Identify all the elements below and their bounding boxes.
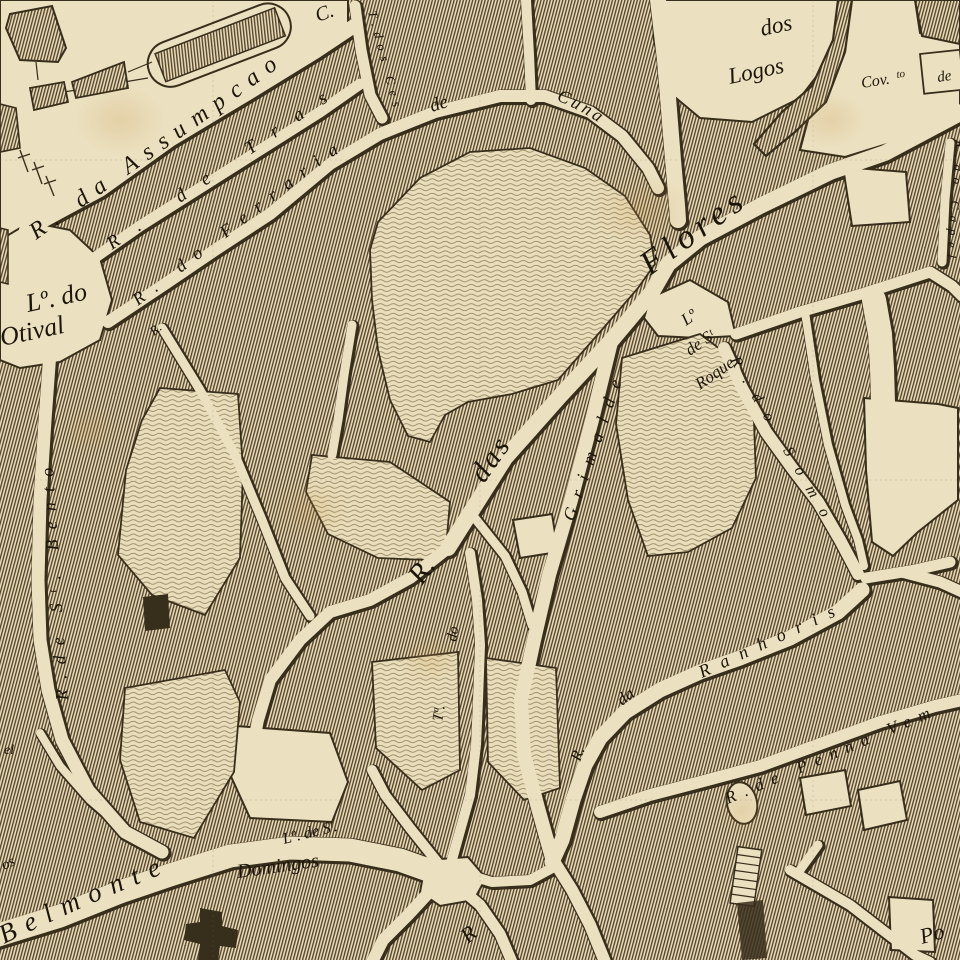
svg-text:de: de [936, 68, 953, 86]
svg-text:el: el [4, 743, 14, 758]
svg-text:Tª.: Tª. [430, 704, 449, 723]
